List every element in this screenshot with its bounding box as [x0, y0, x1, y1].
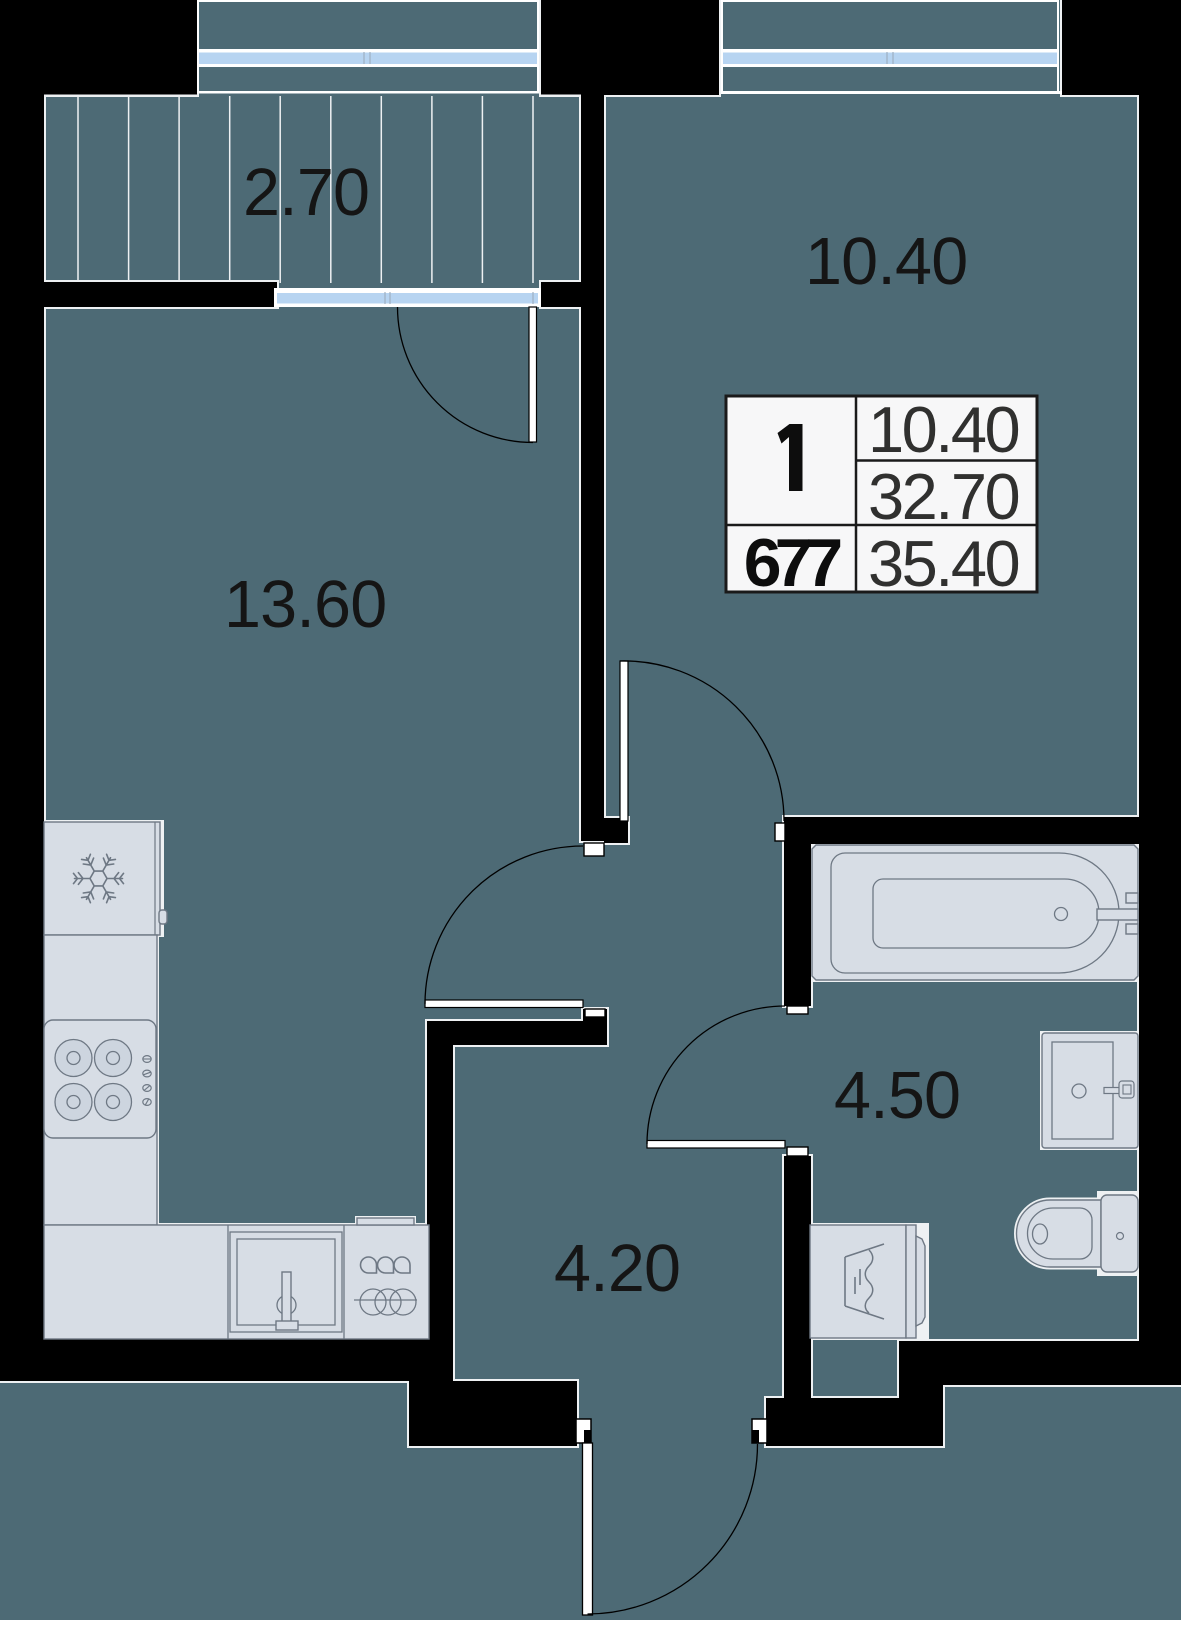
svg-text:4.20: 4.20 — [554, 1232, 680, 1306]
svg-text:10.40: 10.40 — [868, 393, 1019, 466]
svg-text:10.40: 10.40 — [805, 225, 967, 299]
svg-text:677: 677 — [744, 525, 841, 601]
svg-text:4.50: 4.50 — [834, 1059, 960, 1133]
svg-text:32.70: 32.70 — [868, 460, 1019, 533]
svg-text:2.70: 2.70 — [243, 156, 369, 230]
svg-text:13.60: 13.60 — [224, 568, 386, 642]
svg-text:35.40: 35.40 — [868, 527, 1019, 600]
